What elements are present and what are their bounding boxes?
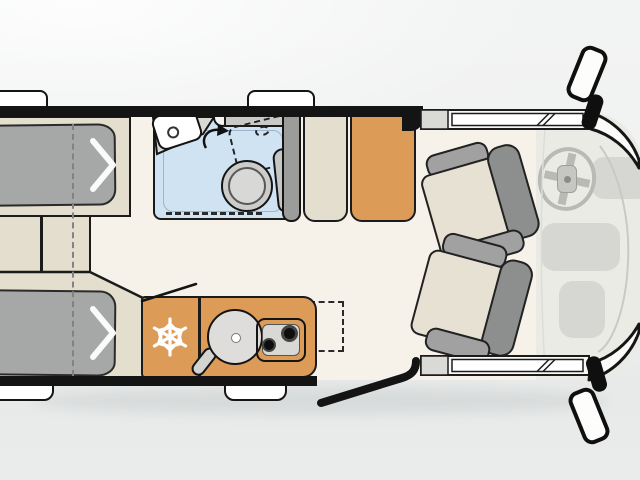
- campervan-floorplan: [0, 0, 640, 480]
- cab-window-strip-bottom: [421, 356, 589, 375]
- sliding-door-open: [321, 361, 416, 403]
- steering-hub: [557, 165, 577, 193]
- cab-window-strip-top: [421, 110, 589, 129]
- towel-bar: [142, 284, 196, 301]
- linework-overlay: [0, 0, 640, 480]
